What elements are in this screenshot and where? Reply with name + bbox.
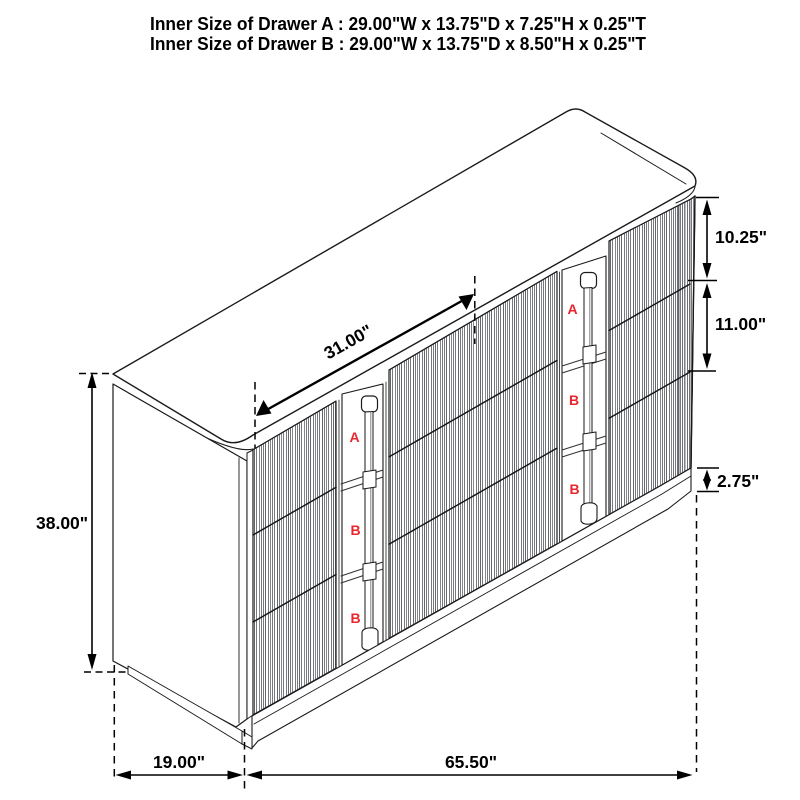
svg-text:Inner Size of Drawer A : 29.00: Inner Size of Drawer A : 29.00"W x 13.75…	[150, 14, 646, 34]
svg-text:A: A	[349, 429, 359, 445]
svg-text:B: B	[569, 481, 579, 497]
svg-text:10.25": 10.25"	[715, 227, 767, 247]
svg-text:B: B	[350, 610, 360, 626]
svg-text:38.00": 38.00"	[36, 513, 88, 533]
svg-text:11.00": 11.00"	[715, 314, 766, 334]
svg-text:19.00": 19.00"	[153, 752, 205, 772]
svg-text:Inner Size of Drawer B : 29.00: Inner Size of Drawer B : 29.00"W x 13.75…	[150, 34, 646, 54]
svg-text:65.50": 65.50"	[445, 752, 497, 772]
svg-text:A: A	[567, 301, 577, 317]
svg-text:2.75": 2.75"	[717, 471, 759, 491]
svg-text:B: B	[350, 522, 360, 538]
svg-text:B: B	[569, 392, 579, 408]
